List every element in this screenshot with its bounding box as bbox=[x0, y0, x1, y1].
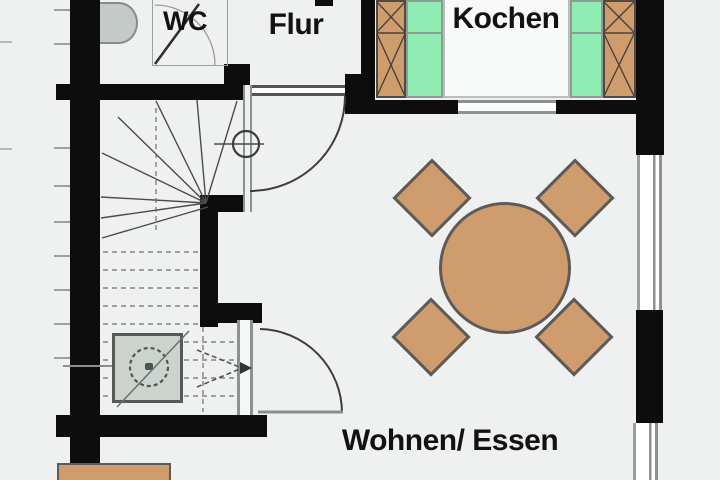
window-right-upper bbox=[637, 155, 662, 310]
room-label-wohnen-essen: Wohnen/ Essen bbox=[310, 424, 590, 458]
neighbor-stair-stubs bbox=[0, 10, 70, 358]
room-label-wc: WC bbox=[150, 6, 220, 37]
wall-bottom bbox=[56, 415, 267, 437]
kitchen-pass-threshold bbox=[458, 100, 556, 114]
window-right-lower bbox=[633, 423, 658, 480]
shower-tray bbox=[112, 333, 183, 403]
wall-wc-bottom bbox=[56, 84, 250, 100]
room-label-kochen: Kochen bbox=[436, 2, 576, 36]
washbasin bbox=[100, 2, 138, 44]
wall-kitchen-bottom-right bbox=[556, 100, 638, 114]
dining-table bbox=[439, 202, 571, 334]
flur-door-jamb-strip bbox=[243, 85, 252, 212]
stair-treads-upper bbox=[101, 100, 264, 238]
sideboard bbox=[57, 463, 171, 480]
wall-kitchen-bottom-left bbox=[375, 100, 458, 114]
floor-plan: WC Flur Kochen Wohnen/ Essen bbox=[0, 0, 720, 480]
flur-door-leaf bbox=[250, 85, 345, 96]
wall-right-outer-top bbox=[636, 0, 664, 155]
wall-kitchen-left bbox=[361, 0, 375, 110]
room-label-flur: Flur bbox=[246, 8, 346, 42]
kitchen-counter-right-brown bbox=[603, 0, 636, 98]
wall-fragment-top bbox=[315, 0, 333, 6]
living-door-arc bbox=[260, 329, 342, 413]
wall-left-outer bbox=[70, 0, 100, 480]
living-door-opening bbox=[237, 320, 253, 415]
wall-pier-wc-door bbox=[224, 64, 250, 86]
kitchen-counter-left-brown bbox=[376, 0, 406, 98]
wall-right-outer-mid bbox=[636, 310, 663, 423]
flur-door-arc bbox=[250, 96, 345, 191]
